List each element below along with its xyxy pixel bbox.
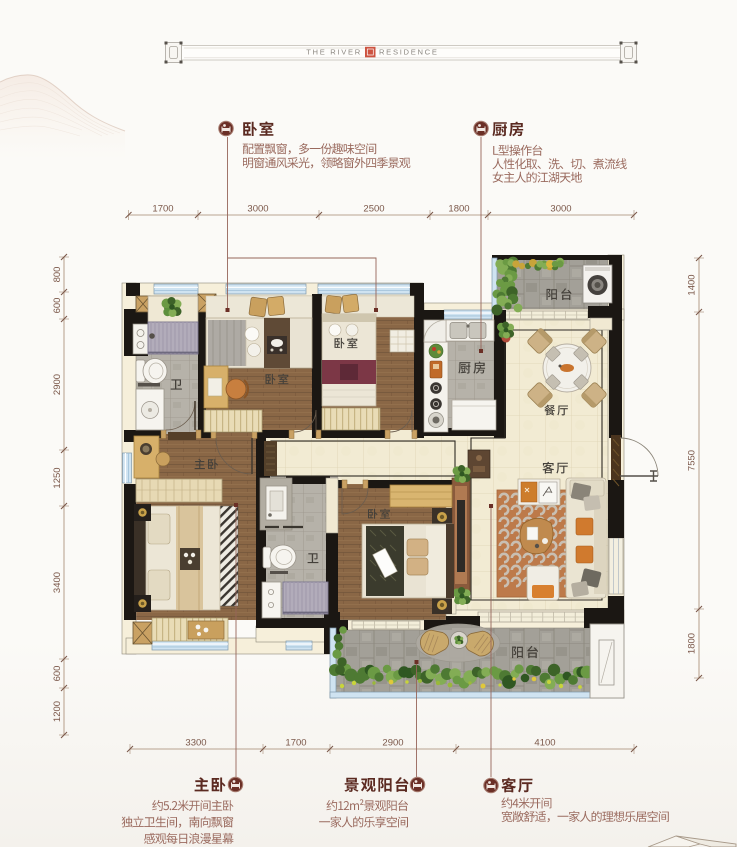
svg-text:600: 600 xyxy=(52,298,63,314)
svg-text:3300: 3300 xyxy=(185,738,206,749)
svg-text:1800: 1800 xyxy=(448,204,469,215)
svg-text:1700: 1700 xyxy=(285,738,306,749)
svg-text:2900: 2900 xyxy=(52,374,63,395)
svg-text:2500: 2500 xyxy=(363,204,384,215)
svg-text:4100: 4100 xyxy=(534,738,555,749)
svg-text:3000: 3000 xyxy=(247,204,268,215)
svg-text:3400: 3400 xyxy=(52,572,63,593)
svg-text:2900: 2900 xyxy=(382,738,403,749)
svg-text:800: 800 xyxy=(52,267,63,283)
svg-text:RESIDENCE: RESIDENCE xyxy=(379,48,439,57)
svg-text:600: 600 xyxy=(52,666,63,682)
svg-text:1250: 1250 xyxy=(52,467,63,488)
svg-text:3000: 3000 xyxy=(550,204,571,215)
svg-text:7550: 7550 xyxy=(687,450,698,471)
svg-text:THE RIVER: THE RIVER xyxy=(306,48,362,57)
svg-text:1400: 1400 xyxy=(687,274,698,295)
svg-text:1700: 1700 xyxy=(152,204,173,215)
svg-text:1800: 1800 xyxy=(687,633,698,654)
svg-text:1200: 1200 xyxy=(52,701,63,722)
